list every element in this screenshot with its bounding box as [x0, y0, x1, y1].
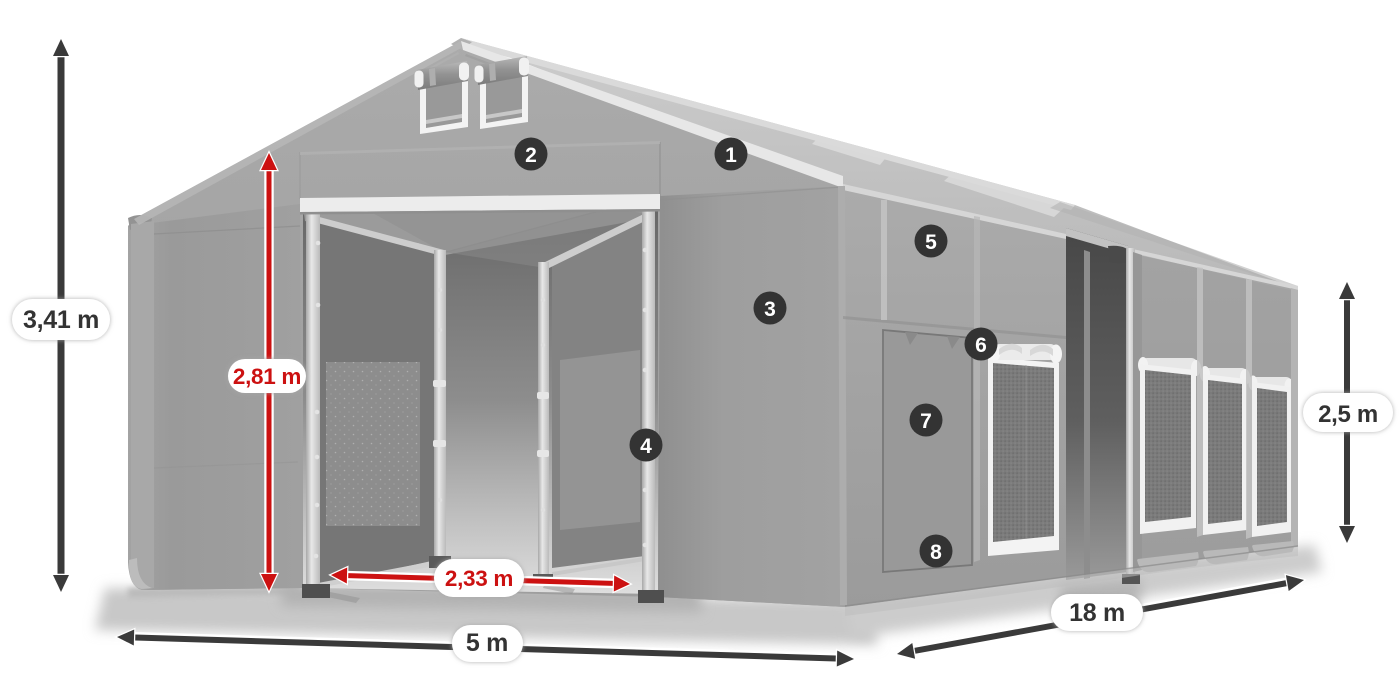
svg-text:2,5 m: 2,5 m	[1318, 401, 1378, 428]
svg-text:7: 7	[920, 410, 932, 433]
svg-text:4: 4	[640, 435, 652, 458]
svg-text:8: 8	[930, 541, 942, 564]
svg-text:6: 6	[975, 334, 987, 357]
svg-text:1: 1	[725, 144, 737, 167]
svg-text:5: 5	[925, 231, 937, 254]
svg-text:2,81 m: 2,81 m	[233, 364, 301, 389]
svg-text:18 m: 18 m	[1069, 599, 1125, 627]
svg-text:3,41 m: 3,41 m	[23, 306, 99, 334]
svg-text:2,33 m: 2,33 m	[445, 566, 513, 591]
svg-text:2: 2	[525, 144, 537, 167]
svg-text:5 m: 5 m	[466, 629, 508, 657]
svg-text:3: 3	[764, 298, 776, 321]
